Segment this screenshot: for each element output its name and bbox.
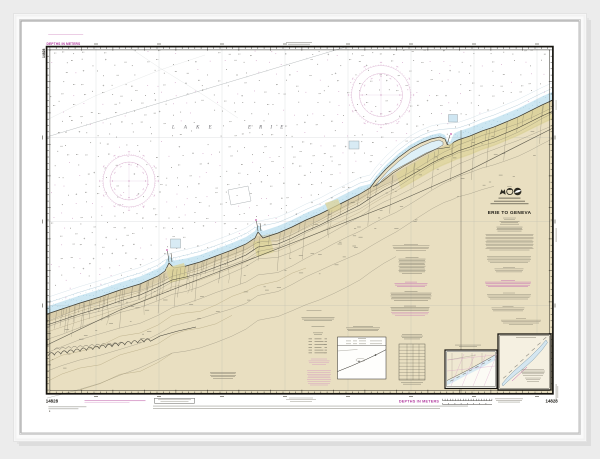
svg-text:14828: 14828	[546, 398, 559, 403]
svg-text:DEPTHS IN METERS: DEPTHS IN METERS	[47, 42, 82, 46]
svg-text:LAKE: LAKE	[171, 126, 221, 131]
svg-text:14828: 14828	[46, 398, 59, 403]
svg-text:DEPTHS IN METERS: DEPTHS IN METERS	[399, 400, 440, 404]
svg-text:14828: 14828	[42, 48, 46, 58]
svg-text:ERIE: ERIE	[247, 126, 291, 131]
svg-text:ERIE TO GENEVA: ERIE TO GENEVA	[488, 210, 532, 215]
